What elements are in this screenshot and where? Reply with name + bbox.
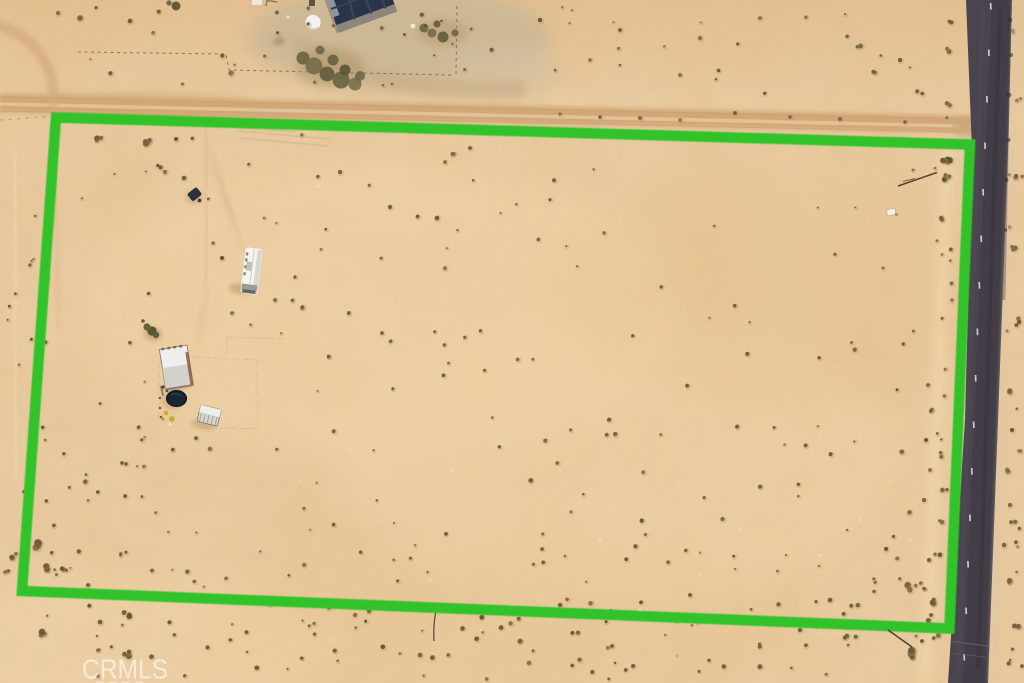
svg-text:CRMLS: CRMLS bbox=[82, 654, 168, 683]
